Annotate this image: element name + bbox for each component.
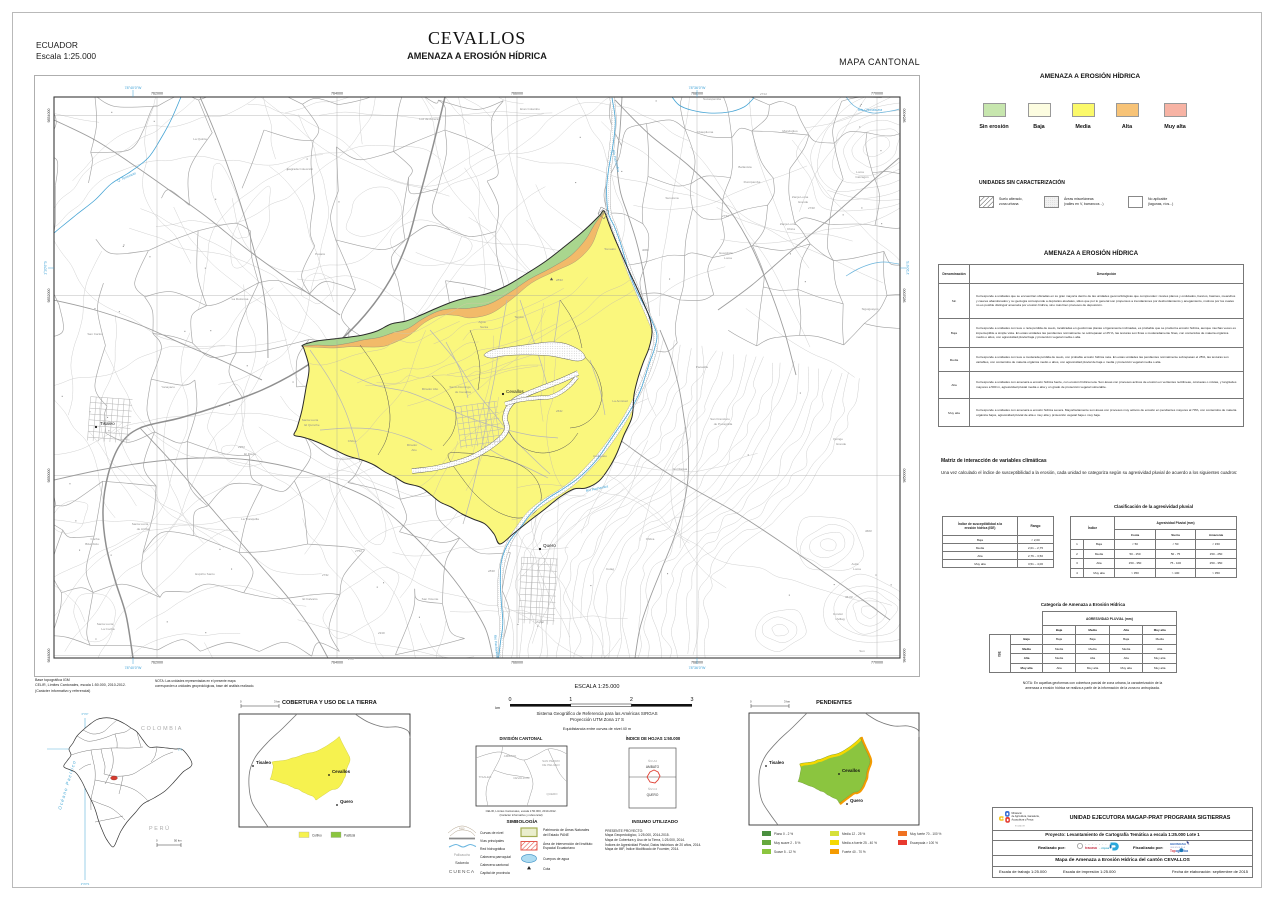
svg-text:Chilco: Chilco [348,439,357,443]
svg-text:3 km: 3 km [274,700,281,704]
svg-text:9850000: 9850000 [47,469,51,483]
svg-text:de Arriba: de Arriba [137,527,150,531]
svg-text:2: 2 [630,697,633,703]
svg-text:Sucaspamba: Sucaspamba [703,97,721,101]
svg-text:PERÚ: PERÚ [149,825,171,832]
svg-text:de Pucagüilla: de Pucagüilla [714,422,733,426]
svg-text:COLOMBIA: COLOMBIA [141,726,183,732]
svg-text:Rumipamba: Rumipamba [744,180,761,184]
svg-text:Salcedo: Salcedo [455,861,469,865]
svg-text:770000: 770000 [871,92,883,96]
svg-text:Tambo: Tambo [514,315,524,319]
svg-text:San Vicente: San Vicente [422,597,439,601]
svg-text:Zanja Loma: Zanja Loma [792,195,809,199]
svg-text:La Cocha: La Cocha [101,627,115,631]
svg-text:La Quinta: La Quinta [193,137,207,141]
svg-text:Agua: Agua [478,320,486,324]
svg-text:CEVALLOS: CEVALLOS [513,776,529,780]
svg-text:Cucha: Cucha [91,537,100,541]
svg-text:2833: 2833 [555,278,563,282]
svg-text:Loma: Loma [853,567,861,571]
svg-text:2740: 2740 [807,206,815,210]
svg-text:Quero: Quero [850,798,863,803]
svg-text:Loma: Loma [856,170,864,174]
svg-text:Suave 5 - 12 %: Suave 5 - 12 % [774,850,796,854]
svg-text:ÑIV-C2: ÑIV-C2 [648,786,657,791]
svg-text:QUERO: QUERO [546,792,558,796]
svg-text:Eran Colambo: Eran Colambo [520,107,540,111]
svg-text:9848000: 9848000 [903,649,907,663]
svg-text:0: 0 [156,839,158,843]
svg-text:Río Chocalsuna: Río Chocalsuna [858,108,882,112]
svg-text:QUERO: QUERO [647,793,659,797]
svg-text:Quero: Quero [340,799,353,804]
svg-text:El Diego: El Diego [244,452,256,456]
svg-text:Santa Lucía: Santa Lucía [97,622,114,626]
svg-text:2707: 2707 [347,657,355,661]
svg-text:36.00: 36.00 [845,595,853,599]
svg-text:Andignato: Andignato [593,454,607,458]
svg-text:9852000: 9852000 [903,289,907,303]
svg-text:Uvillag: Uvillag [835,617,845,621]
svg-text:1°20'0"S: 1°20'0"S [44,261,48,275]
svg-text:1°S: 1°S [178,748,182,752]
svg-text:Culag: Culag [606,567,614,571]
svg-text:Guambión: Guambión [719,251,734,255]
svg-text:Mundugleo: Mundugleo [782,129,798,133]
svg-text:Chica: Chica [787,227,795,231]
svg-text:Pallicaucho: Pallicaucho [454,853,471,857]
svg-text:Yanayacu: Yanayacu [161,385,175,389]
svg-text:2641: 2641 [555,409,563,413]
svg-text:Cevallos: Cevallos [506,389,524,394]
svg-text:de Cevallos: de Cevallos [455,390,472,394]
svg-text:Grande: Grande [798,200,809,204]
svg-text:Catzagón: Catzagón [855,175,869,179]
svg-text:La Tranquilla: La Tranquilla [241,517,259,521]
svg-text:Grande: Grande [836,442,847,446]
svg-text:Media 12 - 25 %: Media 12 - 25 % [842,832,865,836]
svg-text:Chaupiloma: Chaupiloma [697,130,714,134]
svg-text:2953: 2953 [237,445,245,449]
svg-text:km: km [495,706,500,710]
svg-text:Alto: Alto [411,448,417,452]
svg-text:762000: 762000 [151,92,163,96]
svg-text:AMBATO: AMBATO [646,765,660,769]
svg-text:770000: 770000 [871,661,883,665]
svg-text:766000: 766000 [511,661,523,665]
svg-text:Plano 0 - 2 %: Plano 0 - 2 % [774,832,793,836]
svg-text:78°40'0"W: 78°40'0"W [125,666,142,670]
svg-text:2754: 2754 [354,549,362,553]
svg-text:DE PELILEO: DE PELILEO [542,763,560,767]
svg-text:Río Pachanlica: Río Pachanlica [493,635,499,658]
svg-text:Cultivo: Cultivo [312,834,322,838]
svg-text:TISALEO: TISALEO [479,775,492,779]
svg-text:Santo Domingo: Santo Domingo [449,385,471,389]
svg-text:Luz de América: Luz de América [419,117,441,121]
svg-text:Santa Lucía: Santa Lucía [132,522,149,526]
svg-text:Pastizal: Pastizal [344,834,355,838]
svg-text:1°20'0"S: 1°20'0"S [906,261,910,275]
svg-text:Bilumbúlo: Bilumbúlo [85,542,99,546]
svg-text:78°40'0"W: 78°40'0"W [125,86,142,90]
svg-text:762000: 762000 [151,661,163,665]
svg-text:Mirador Alto: Mirador Alto [422,387,439,391]
svg-text:Suruloma: Suruloma [665,196,679,200]
svg-text:0°0'0": 0°0'0" [82,712,89,716]
svg-text:764000: 764000 [331,661,343,665]
svg-text:Cevallos: Cevallos [332,769,351,774]
svg-text:9852000: 9852000 [47,289,51,303]
svg-text:3006: 3006 [642,248,649,252]
svg-text:Sagrada Colección: Sagrada Colección [287,167,313,171]
svg-text:78°36'0"W: 78°36'0"W [689,666,706,670]
svg-text:0: 0 [509,697,512,703]
svg-text:Pucará: Pucará [315,252,325,256]
svg-text:Muy fuerte 70 - 100 %: Muy fuerte 70 - 100 % [910,832,942,836]
svg-text:Pacasille: Pacasille [696,365,709,369]
svg-text:2916: 2916 [377,631,385,635]
svg-text:2741: 2741 [321,573,329,577]
svg-text:CUENCA: CUENCA [449,869,475,875]
svg-text:Media a fuerte 25 - 40 %: Media a fuerte 25 - 40 % [842,841,877,845]
svg-text:Mirador: Mirador [407,443,418,447]
svg-text:San Carlos: San Carlos [87,332,103,336]
svg-text:764000: 764000 [331,92,343,96]
svg-text:3: 3 [691,697,694,703]
svg-text:3600: 3600 [865,529,872,533]
svg-text:Bellavista: Bellavista [738,165,752,169]
svg-text:0: 0 [240,700,242,704]
svg-text:Santa Lucía: Santa Lucía [302,418,319,422]
svg-text:ÑIV-A4: ÑIV-A4 [648,758,657,763]
svg-text:50 km: 50 km [174,839,182,843]
svg-text:Muy suave 2 - 5 %: Muy suave 2 - 5 % [774,841,801,845]
svg-text:9854000: 9854000 [903,109,907,123]
svg-text:2°0'0"S: 2°0'0"S [81,882,90,886]
svg-text:La Amistad: La Amistad [612,399,628,403]
svg-text:9848000: 9848000 [47,649,51,663]
svg-text:Tisaleo: Tisaleo [256,760,271,765]
svg-text:1: 1 [569,697,572,703]
svg-text:Loma: Loma [724,256,732,260]
svg-text:El Quinche: El Quinche [304,423,319,427]
svg-text:9850000: 9850000 [903,469,907,483]
svg-text:Q. Terremoto: Q. Terremoto [117,171,137,183]
svg-text:Zanja Loma: Zanja Loma [780,222,797,226]
svg-text:San Francisco: San Francisco [710,417,730,421]
svg-text:Gurrilagua: Gurrilagua [673,467,688,471]
svg-text:4050: 4050 [459,828,465,831]
svg-text:Quinge: Quinge [833,437,843,441]
svg-text:Zurial: Zurial [536,620,544,624]
svg-text:Tomalón: Tomalón [604,247,616,251]
svg-text:9854000: 9854000 [47,109,51,123]
svg-text:Cóndor: Cóndor [833,612,843,616]
svg-text:2849: 2849 [487,569,495,573]
svg-text:Chilca: Chilca [646,537,655,541]
svg-text:Aulla: Aulla [852,562,859,566]
svg-text:2714: 2714 [759,92,767,96]
svg-text:Cevallos: Cevallos [842,768,861,773]
svg-text:Sun: Sun [859,649,865,653]
svg-text:Santa: Santa [480,325,488,329]
svg-text:Espíritu Santo: Espíritu Santo [195,572,215,576]
svg-text:2733: 2733 [721,214,729,218]
svg-text:Tisaleo: Tisaleo [769,760,784,765]
svg-text:El Calvario: El Calvario [303,597,318,601]
svg-text:Tisaleo: Tisaleo [100,421,115,426]
svg-text:AMBATO: AMBATO [504,754,517,758]
svg-text:Quero: Quero [543,543,556,548]
svg-text:La Dolorosa: La Dolorosa [232,297,249,301]
svg-text:Siguiguayco: Siguiguayco [862,307,879,311]
svg-text:Escarpada > 100 %: Escarpada > 100 % [910,841,938,845]
svg-text:766000: 766000 [511,92,523,96]
svg-text:Fuerte 40 - 70 %: Fuerte 40 - 70 % [842,850,866,854]
svg-text:78°36'0"W: 78°36'0"W [689,86,706,90]
